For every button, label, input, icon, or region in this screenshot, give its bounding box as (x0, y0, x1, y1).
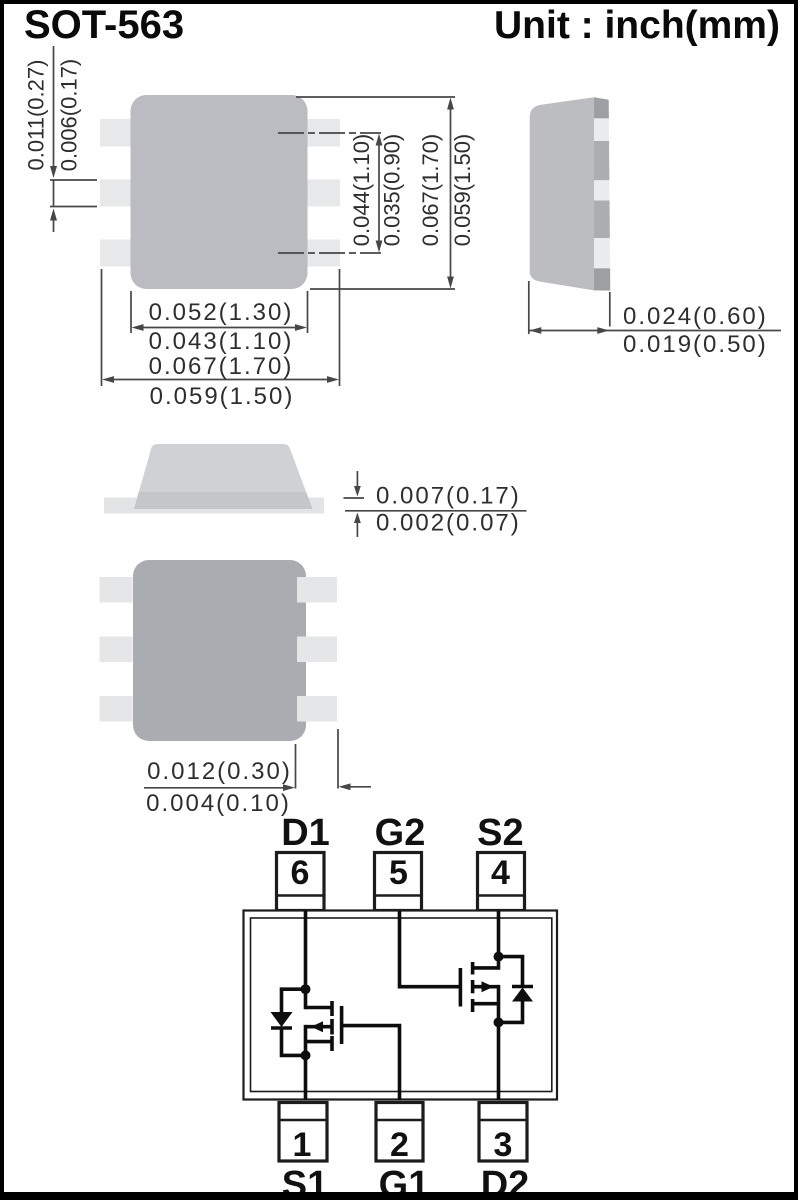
svg-text:0.059(1.50): 0.059(1.50) (150, 383, 295, 410)
svg-text:0.004(0.10): 0.004(0.10) (146, 790, 291, 817)
svg-text:0.035(0.90): 0.035(0.90) (379, 134, 404, 247)
svg-text:Unit : inch(mm): Unit : inch(mm) (494, 4, 780, 47)
svg-text:4: 4 (491, 854, 510, 892)
svg-text:0.002(0.07): 0.002(0.07) (376, 510, 521, 537)
svg-text:D1: D1 (281, 812, 330, 854)
svg-text:1: 1 (293, 1126, 312, 1164)
svg-text:0.019(0.50): 0.019(0.50) (623, 331, 768, 358)
svg-text:0.007(0.17): 0.007(0.17) (376, 483, 521, 510)
svg-text:0.011(0.27): 0.011(0.27) (23, 60, 48, 171)
svg-text:0.006(0.17): 0.006(0.17) (56, 59, 81, 172)
svg-text:0.067(1.70): 0.067(1.70) (149, 353, 294, 380)
svg-text:2: 2 (390, 1126, 409, 1164)
svg-text:0.024(0.60): 0.024(0.60) (623, 303, 768, 330)
svg-text:S2: S2 (477, 812, 523, 854)
svg-text:5: 5 (389, 854, 408, 892)
svg-text:3: 3 (494, 1126, 513, 1164)
svg-text:0.043(1.10): 0.043(1.10) (149, 328, 294, 355)
svg-text:SOT-563: SOT-563 (24, 3, 184, 47)
svg-text:0.012(0.30): 0.012(0.30) (147, 758, 292, 785)
svg-text:0.067(1.70): 0.067(1.70) (418, 134, 443, 247)
svg-text:6: 6 (291, 854, 310, 892)
svg-text:G2: G2 (375, 812, 426, 854)
svg-text:0.052(1.30): 0.052(1.30) (149, 299, 294, 326)
svg-text:0.059(1.50): 0.059(1.50) (450, 134, 475, 247)
svg-text:0.044(1.10): 0.044(1.10) (349, 134, 374, 247)
